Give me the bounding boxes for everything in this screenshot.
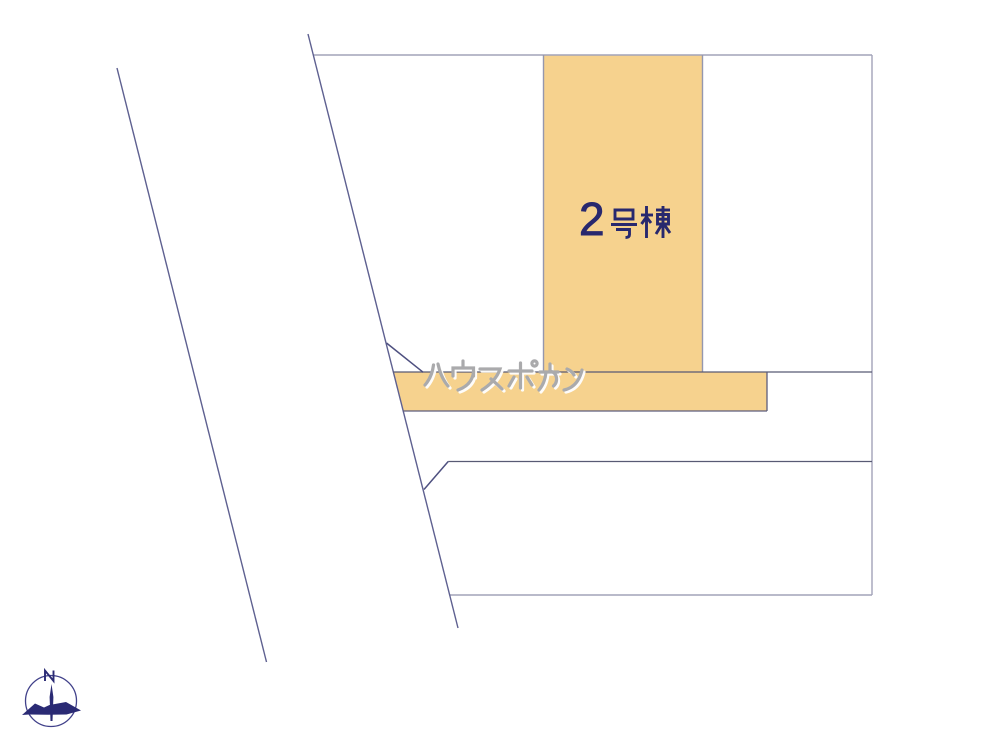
svg-text:2: 2 bbox=[579, 193, 605, 245]
